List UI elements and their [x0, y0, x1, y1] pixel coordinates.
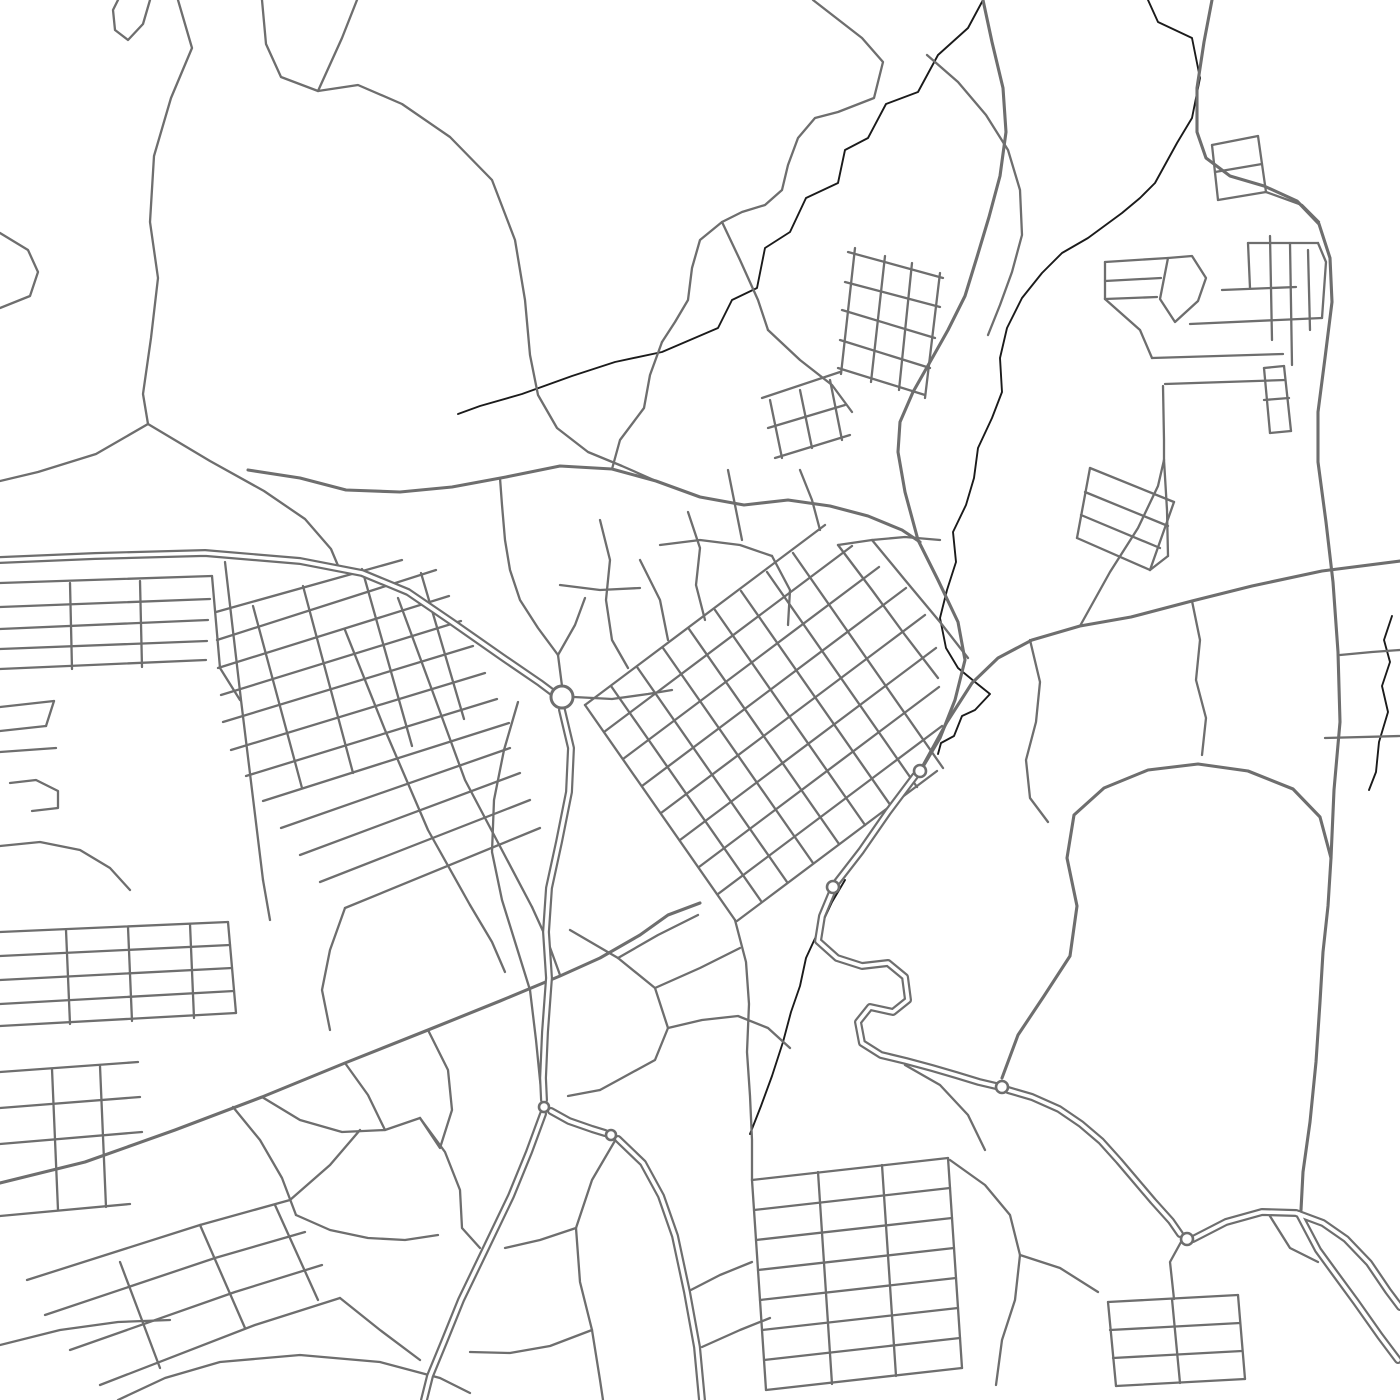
road-segment	[766, 1368, 962, 1390]
road-segment	[899, 263, 912, 390]
road-segment	[70, 1265, 322, 1350]
road-segment	[0, 233, 38, 308]
road-segment	[0, 701, 54, 707]
road-segment	[253, 606, 302, 788]
road-segment	[0, 553, 552, 692]
road-segment	[640, 560, 668, 640]
road-segment	[718, 726, 942, 894]
road-segment	[27, 1200, 290, 1280]
road-segment	[560, 585, 640, 590]
road-segment	[296, 1215, 438, 1240]
road-segment	[699, 687, 939, 867]
road-segment	[113, 0, 150, 40]
road-segment	[1163, 386, 1164, 460]
road-segment	[752, 1158, 948, 1180]
road-segment	[263, 880, 270, 920]
road-segment	[750, 880, 845, 1134]
road-junction-node	[827, 881, 839, 893]
road-segment	[148, 424, 339, 568]
road-segment	[1081, 515, 1160, 548]
road-segment	[1077, 468, 1090, 538]
road-segment	[345, 1063, 385, 1130]
road-segment	[45, 1232, 305, 1315]
city-street-map	[0, 0, 1400, 1400]
road-segment	[752, 1180, 766, 1390]
road-segment	[1105, 297, 1157, 299]
road-segment	[1270, 431, 1291, 433]
road-segment	[0, 842, 130, 890]
road-segment	[221, 621, 461, 695]
road-segment	[320, 800, 530, 882]
road-segment	[737, 771, 937, 921]
road-segment	[688, 512, 705, 620]
road-segment	[318, 85, 656, 481]
road-segment	[1172, 1299, 1180, 1383]
road-segment	[642, 588, 906, 786]
road-segment	[225, 562, 263, 880]
road-segment	[470, 1330, 592, 1353]
road-segment	[576, 1139, 616, 1400]
road-segment	[470, 905, 505, 972]
road-segment	[200, 1225, 245, 1328]
road-segment	[611, 686, 761, 901]
road-segment	[505, 1228, 576, 1248]
road-segment	[1008, 1090, 1180, 1234]
road-segment	[420, 1030, 452, 1148]
road-segment	[500, 478, 558, 655]
road-segment	[340, 1298, 420, 1360]
road-segment	[758, 1248, 954, 1270]
road-segment	[318, 0, 357, 91]
road-segment	[1325, 736, 1400, 738]
road-segment	[1290, 243, 1292, 365]
road-segment	[722, 222, 768, 330]
road-segment	[660, 540, 772, 556]
road-segment	[1026, 640, 1048, 822]
road-segment	[1192, 601, 1206, 755]
road-segment	[0, 599, 210, 607]
road-segment	[1080, 460, 1164, 626]
road-segment	[262, 1097, 420, 1132]
road-segment	[840, 340, 930, 368]
road-segment	[837, 776, 915, 882]
road-segment	[1190, 318, 1322, 324]
road-segment	[231, 673, 485, 750]
road-segment	[702, 1318, 770, 1347]
road-segment	[0, 748, 56, 752]
road-segment	[568, 1090, 600, 1096]
roundabout	[551, 686, 573, 708]
road-segment	[0, 1204, 130, 1216]
road-segment	[0, 945, 230, 956]
road-segment	[0, 553, 552, 692]
road-segment	[0, 968, 232, 980]
road-segment	[262, 0, 318, 91]
road-segment	[0, 576, 212, 583]
road-segment	[570, 930, 668, 1090]
road-segment	[838, 537, 940, 545]
road-segment	[938, 0, 1200, 754]
road-segment	[948, 1158, 962, 1368]
road-segment	[10, 780, 58, 811]
road-segment	[421, 573, 464, 719]
road-segment	[848, 252, 943, 278]
road-segment	[1020, 1255, 1098, 1292]
road-segment	[1002, 764, 1331, 1078]
road-segment	[872, 540, 968, 658]
road-segment	[668, 1016, 790, 1048]
streams-layer	[458, 0, 1392, 1134]
road-segment	[1301, 858, 1331, 1210]
road-segment	[1318, 243, 1326, 318]
road-segment	[46, 701, 54, 726]
road-segment	[0, 1062, 138, 1072]
road-segment	[1105, 278, 1161, 281]
road-segment	[1248, 243, 1250, 288]
road-segment	[1212, 136, 1258, 145]
road-segment	[1105, 258, 1168, 262]
road-segment	[100, 1298, 340, 1385]
minor-roads-layer	[0, 0, 1400, 1400]
road-segment	[898, 0, 1006, 765]
road-segment	[558, 598, 585, 655]
road-segment	[0, 641, 207, 649]
road-segment	[687, 1262, 752, 1292]
road-segment	[663, 648, 813, 863]
road-junction-node	[1181, 1233, 1193, 1245]
road-segment	[760, 1278, 956, 1300]
road-segment	[0, 620, 208, 629]
road-segment	[1160, 256, 1206, 322]
major-roads-inner-layer	[0, 553, 1400, 1400]
road-segment	[118, 1355, 470, 1400]
road-segment	[1369, 616, 1392, 790]
road-segment	[0, 726, 46, 731]
road-segment	[492, 702, 543, 1102]
road-segment	[800, 470, 820, 530]
road-segment	[1222, 287, 1296, 290]
road-segment	[0, 1013, 236, 1026]
road-segment	[735, 920, 752, 1180]
road-junction-node	[996, 1081, 1008, 1093]
road-segment	[70, 583, 72, 669]
road-segment	[1170, 1242, 1181, 1299]
road-segment	[637, 667, 787, 882]
road-segment	[882, 1165, 896, 1376]
road-segment	[770, 400, 782, 458]
road-segment	[920, 561, 1400, 771]
road-segment	[143, 0, 192, 424]
road-segment	[1164, 460, 1168, 556]
road-segment	[1105, 299, 1152, 358]
road-junction-node	[539, 1102, 549, 1112]
road-segment	[762, 1308, 958, 1330]
road-segment	[1165, 380, 1285, 384]
road-segment	[845, 282, 940, 307]
road-segment	[140, 581, 142, 667]
road-segment	[362, 569, 412, 746]
road-segment	[1108, 1302, 1116, 1386]
road-segment	[558, 655, 562, 686]
road-junction-node	[606, 1130, 616, 1140]
road-segment	[420, 1118, 480, 1248]
road-segment	[303, 586, 353, 773]
road-segment	[585, 705, 735, 920]
major-roads-casing-layer	[0, 553, 1400, 1400]
road-segment	[0, 424, 148, 481]
street-map-canvas	[0, 0, 1400, 1400]
road-segment	[754, 1188, 950, 1210]
road-segment	[1008, 1090, 1180, 1234]
road-segment	[1152, 354, 1283, 358]
road-segment	[0, 991, 234, 1004]
road-segment	[764, 1338, 960, 1360]
road-segment	[655, 948, 740, 988]
road-segment	[927, 55, 1022, 335]
road-segment	[0, 1097, 140, 1108]
road-segment	[1264, 366, 1284, 368]
road-segment	[275, 1205, 318, 1300]
road-junction-node	[914, 765, 926, 777]
road-segment	[1218, 192, 1266, 200]
road-segment	[1238, 1295, 1245, 1379]
road-segment	[1340, 650, 1400, 655]
road-segment	[0, 660, 206, 669]
road-segment	[0, 1132, 142, 1144]
road-segment	[756, 1218, 952, 1240]
road-segment	[842, 310, 935, 338]
road-segment	[600, 520, 628, 668]
road-segment	[212, 576, 220, 668]
road-segment	[1193, 1212, 1400, 1307]
road-segment	[0, 922, 228, 932]
road-segment	[322, 908, 345, 1030]
road-segment	[818, 892, 996, 1086]
road-segment	[290, 1130, 360, 1200]
road-segment	[458, 0, 983, 414]
road-segment	[233, 1107, 296, 1215]
road-segment	[618, 1139, 702, 1400]
road-segment	[618, 1139, 702, 1400]
